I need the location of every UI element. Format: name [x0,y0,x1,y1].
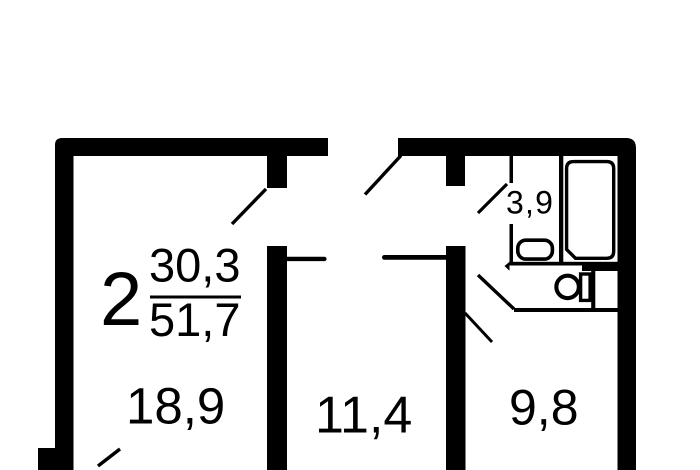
svg-text:18,9: 18,9 [126,378,225,435]
svg-text:51,7: 51,7 [149,293,240,346]
svg-text:2: 2 [100,257,142,342]
svg-text:9,8: 9,8 [509,380,579,436]
svg-text:30,3: 30,3 [149,239,240,292]
svg-text:3,9: 3,9 [506,185,554,221]
svg-text:11,4: 11,4 [315,387,412,445]
